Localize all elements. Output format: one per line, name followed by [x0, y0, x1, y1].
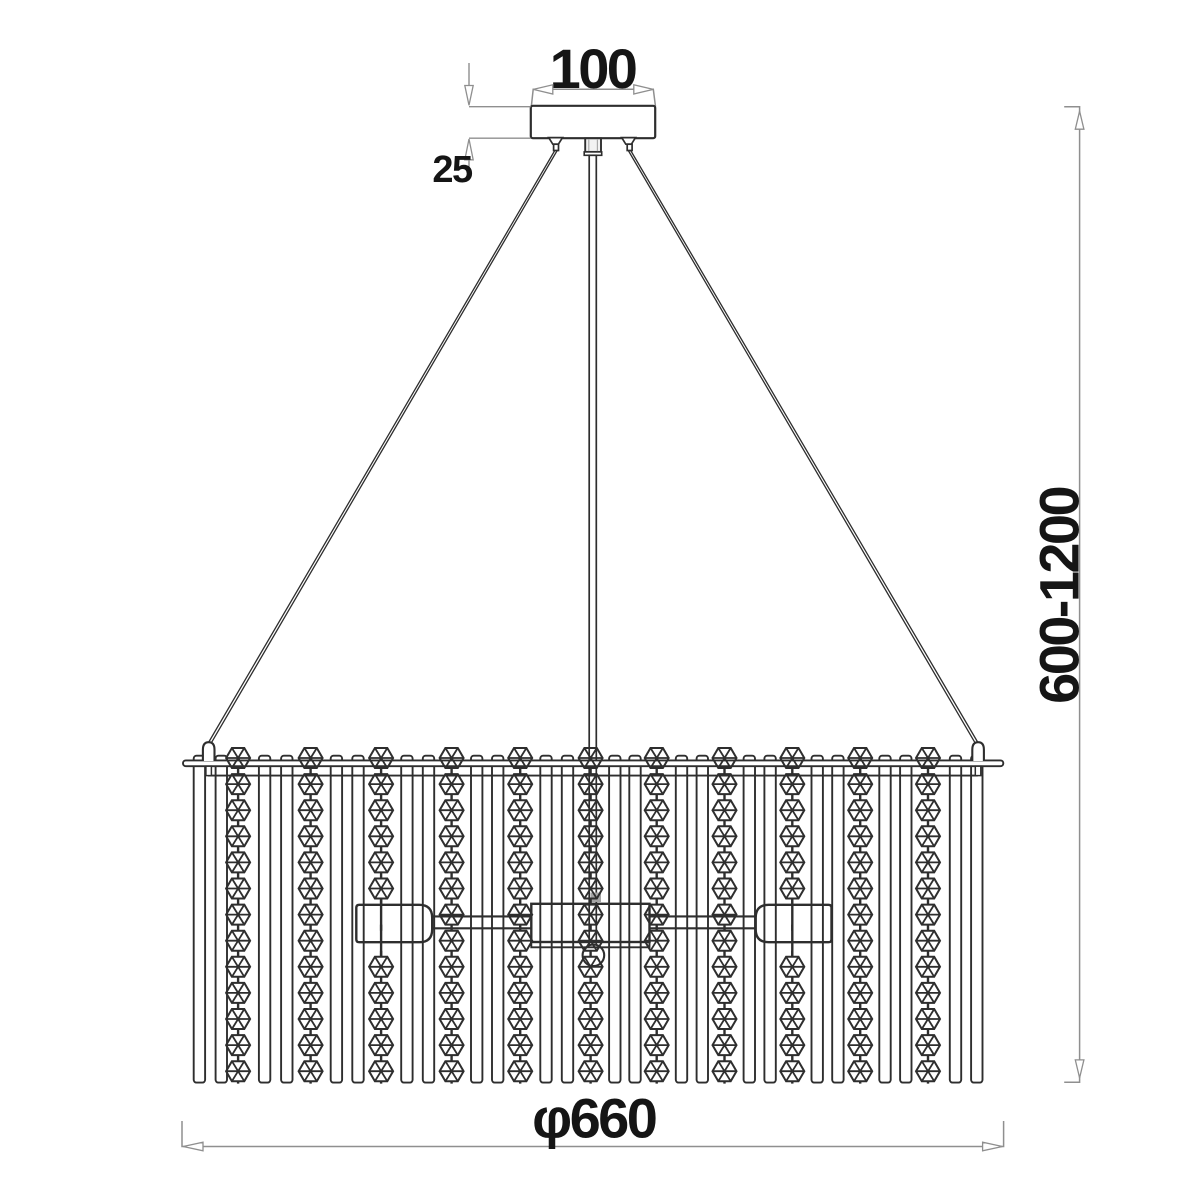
svg-text:600-1200: 600-1200 — [1028, 488, 1091, 704]
svg-text:φ660: φ660 — [532, 1087, 656, 1150]
svg-text:25: 25 — [432, 149, 473, 191]
